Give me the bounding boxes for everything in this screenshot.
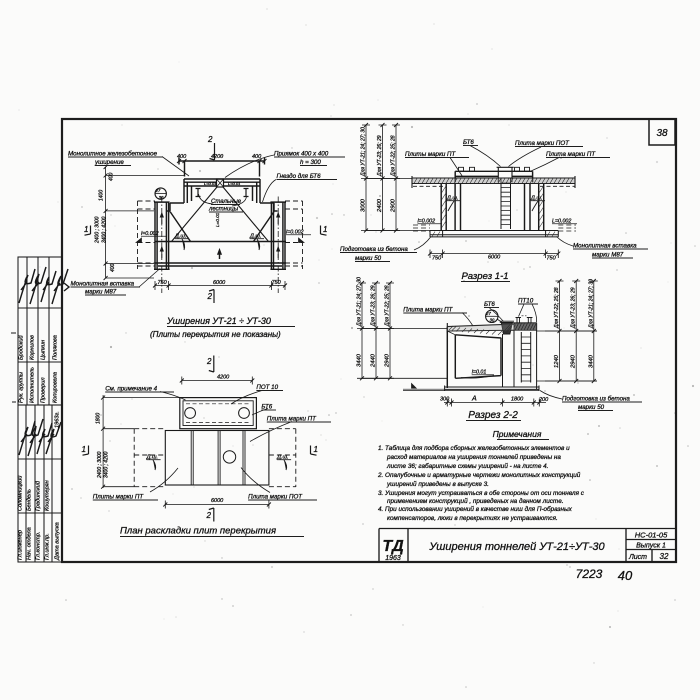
svg-text:2. Опалубочные и арматурные: 2. Опалубочные и арматурные чертежи моно… — [377, 471, 581, 479]
svg-text:38: 38 — [656, 128, 668, 139]
svg-text:Монолитная вставка: Монолитная вставка — [573, 243, 637, 250]
svg-text:БТ6: БТ6 — [261, 404, 272, 411]
svg-text:750: 750 — [272, 280, 282, 286]
svg-text:Плиты марки ПТ: Плиты марки ПТ — [93, 494, 145, 501]
svg-text:Подготовка из бетона: Подготовка из бетона — [562, 396, 630, 403]
svg-text:листе 36; габаритные схемы: листе 36; габаритные схемы уширений - на… — [386, 462, 548, 470]
svg-text:2400 ; 3000: 2400 ; 3000 — [95, 216, 101, 244]
svg-text:Градинский: Градинский — [35, 481, 42, 511]
svg-text:См. примечание 4: См. примечание 4 — [105, 386, 157, 393]
svg-text:Гнездо для БТ6: Гнездо для БТ6 — [277, 173, 322, 180]
svg-text:2: 2 — [206, 357, 212, 366]
svg-text:2: 2 — [206, 511, 212, 520]
svg-text:2900: 2900 — [391, 198, 397, 213]
svg-text:3440: 3440 — [588, 354, 594, 368]
svg-text:1240: 1240 — [554, 354, 560, 368]
svg-text:L=0.01: L=0.01 — [215, 212, 220, 227]
svg-text:1963: 1963 — [385, 555, 401, 562]
svg-text:ПТ10: ПТ10 — [518, 298, 534, 305]
svg-text:марки М87: марки М87 — [592, 252, 624, 259]
svg-text:Для УТ-22; 25; 28: Для УТ-22; 25; 28 — [391, 135, 397, 177]
svg-text:2940: 2940 — [385, 353, 391, 368]
svg-text:Гл.инженер: Гл.инженер — [18, 530, 24, 560]
svg-text:1. Таблица для подбора сбор: 1. Таблица для подбора сборных железобет… — [378, 444, 570, 452]
svg-text:Разрез 2-2: Разрез 2-2 — [468, 410, 518, 421]
svg-text:300: 300 — [440, 397, 450, 403]
svg-text:30: 30 — [159, 195, 164, 200]
svg-text:6000: 6000 — [488, 255, 501, 261]
svg-text:Монолитная вставка: Монолитная вставка — [71, 281, 135, 288]
svg-text:6000: 6000 — [211, 498, 224, 504]
svg-text:марки М87: марки М87 — [85, 289, 117, 296]
svg-text:27: 27 — [155, 188, 161, 193]
svg-text:Плита марки ПТ: Плита марки ПТ — [546, 151, 596, 158]
svg-text:Полякова: Полякова — [53, 335, 59, 360]
svg-text:Гл.констр.: Гл.констр. — [36, 532, 42, 560]
svg-text:400: 400 — [252, 154, 262, 160]
svg-text:3440: 3440 — [357, 353, 363, 367]
svg-text:3000: 3000 — [361, 198, 367, 212]
svg-text:Примечания: Примечания — [493, 429, 542, 439]
svg-text:уширений приведены в выпуск: уширений приведены в выпуске 3. — [386, 480, 489, 488]
svg-text:Корнилов: Корнилов — [30, 335, 36, 360]
svg-text:2400: 2400 — [377, 198, 383, 213]
svg-text:компенсаторов, люки в перек: компенсаторов, люки в перекрытиях не уст… — [387, 515, 558, 522]
svg-text:2: 2 — [207, 292, 213, 301]
svg-text:1: 1 — [84, 225, 88, 234]
svg-text:Уширения УТ-21 ÷ УТ-30: Уширения УТ-21 ÷ УТ-30 — [166, 316, 271, 326]
svg-text:Уширения тоннелей УТ-21÷УТ-30: Уширения тоннелей УТ-21÷УТ-30 — [428, 541, 605, 553]
svg-text:Плиты марки ПТ: Плиты марки ПТ — [405, 151, 457, 158]
svg-text:Бродский: Бродский — [18, 335, 25, 360]
svg-text:Приямок 400 х 400: Приямок 400 х 400 — [274, 151, 329, 158]
svg-text:Плита марки ПОТ: Плита марки ПОТ — [515, 140, 570, 147]
svg-text:2400 ; 3000: 2400 ; 3000 — [97, 451, 103, 479]
svg-text:расход материалов на уширен: расход материалов на уширения тоннелей п… — [386, 453, 561, 461]
svg-text:Разрез 1-1: Разрез 1-1 — [461, 271, 508, 282]
svg-text:Проверил: Проверил — [41, 377, 47, 403]
svg-text:применением конструкций , при: применением конструкций , приведеных на … — [387, 497, 563, 505]
svg-text:Подготовка из бетона: Подготовка из бетона — [340, 246, 408, 253]
svg-text:3. Уширения могут устраивать: 3. Уширения могут устраиваться в обе сто… — [378, 489, 585, 497]
svg-text:400: 400 — [110, 263, 116, 272]
svg-text:200: 200 — [538, 397, 549, 403]
svg-text:марки 50: марки 50 — [578, 404, 605, 411]
svg-text:Гл.инж.пр.: Гл.инж.пр. — [45, 533, 51, 560]
svg-text:4. При использовании уширени: 4. При использовании уширений в качестве… — [378, 505, 573, 513]
svg-text:400: 400 — [109, 172, 115, 181]
svg-text:Нач. отдела: Нач. отдела — [27, 527, 33, 560]
svg-text:Плита марки ПТ: Плита марки ПТ — [267, 416, 317, 423]
svg-text:Плита марки ПТ: Плита марки ПТ — [403, 307, 453, 314]
svg-text:4200: 4200 — [211, 154, 224, 160]
svg-text:1800: 1800 — [96, 413, 102, 424]
svg-text:L=0.01: L=0.01 — [228, 181, 240, 186]
svg-text:ТД: ТД — [382, 538, 404, 555]
svg-text:1: 1 — [323, 225, 327, 234]
svg-text:4200: 4200 — [217, 375, 230, 381]
svg-text:(Плиты перекрытия не показа: (Плиты перекрытия не показаны) — [150, 330, 281, 339]
svg-text:Для УТ-22; 25; 28: Для УТ-22; 25; 28 — [385, 285, 391, 327]
svg-text:750: 750 — [432, 256, 442, 262]
svg-text:Выпуск 1: Выпуск 1 — [636, 543, 666, 550]
svg-text:План раскладки плит перекры: План раскладки плит перекрытия — [120, 526, 276, 537]
svg-text:1800: 1800 — [511, 397, 524, 403]
svg-text:h = 300: h = 300 — [300, 159, 321, 166]
svg-text:А: А — [471, 396, 477, 403]
svg-text:27: 27 — [485, 311, 491, 316]
svg-text:Для УТ-23; 26; 29: Для УТ-23; 26; 29 — [371, 285, 377, 327]
svg-text:3400 ; 4200: 3400 ; 4200 — [102, 216, 108, 243]
svg-text:400: 400 — [177, 154, 187, 160]
svg-text:БТ6: БТ6 — [463, 139, 474, 146]
svg-text:2440: 2440 — [371, 353, 377, 368]
svg-text:32: 32 — [660, 552, 669, 561]
svg-text:6000: 6000 — [213, 280, 226, 286]
svg-text:марки 50: марки 50 — [355, 255, 382, 262]
svg-text:Плита марки ПОТ: Плита марки ПОТ — [248, 494, 303, 501]
svg-text:Для УТ-23; 26; 29: Для УТ-23; 26; 29 — [377, 135, 383, 177]
svg-text:Рук. группы: Рук. группы — [19, 372, 25, 403]
svg-text:Кошутерян: Кошутерян — [45, 480, 51, 511]
svg-text:3400 ; 4200: 3400 ; 4200 — [104, 451, 110, 478]
svg-text:Цыпкин: Цыпкин — [41, 340, 47, 360]
svg-text:уширение: уширение — [94, 159, 124, 166]
svg-text:Лист: Лист — [628, 554, 647, 561]
svg-text:7223: 7223 — [576, 567, 603, 581]
svg-text:1400: 1400 — [99, 190, 105, 201]
svg-text:ПОТ 10: ПОТ 10 — [256, 384, 278, 391]
svg-text:2940: 2940 — [571, 354, 577, 369]
svg-text:Для УТ-21; 24; 27; 30: Для УТ-21; 24; 27; 30 — [588, 279, 594, 329]
svg-text:БТ6: БТ6 — [484, 301, 495, 308]
svg-text:Для УТ-21; 24; 27; 30: Для УТ-21; 24; 27; 30 — [361, 127, 367, 177]
svg-text:40: 40 — [618, 568, 633, 583]
svg-text:НС-01-05: НС-01-05 — [635, 531, 668, 540]
svg-text:Соломницкий: Соломницкий — [17, 476, 24, 511]
svg-text:Монолитное железобетонное: Монолитное железобетонное — [68, 151, 158, 158]
svg-text:Для УТ-21; 24; 27; 30: Для УТ-21; 24; 27; 30 — [357, 277, 363, 327]
svg-text:1: 1 — [82, 445, 86, 454]
svg-text:2: 2 — [207, 135, 213, 144]
svg-text:30: 30 — [490, 318, 495, 323]
svg-text:Исполнитель: Исполнитель — [30, 367, 36, 403]
svg-text:Копировала: Копировала — [53, 372, 59, 403]
svg-text:750: 750 — [158, 280, 168, 286]
svg-text:Дата выпуска: Дата выпуска — [55, 522, 61, 561]
svg-text:Для УТ-23; 26; 29: Для УТ-23; 26; 29 — [571, 287, 577, 329]
svg-text:Бендель: Бендель — [27, 489, 33, 511]
svg-text:750: 750 — [547, 256, 557, 262]
svg-text:Для УТ-22; 25; 28: Для УТ-22; 25; 28 — [554, 287, 560, 329]
svg-text:1: 1 — [314, 445, 318, 454]
svg-text:L=0.01: L=0.01 — [204, 181, 216, 186]
